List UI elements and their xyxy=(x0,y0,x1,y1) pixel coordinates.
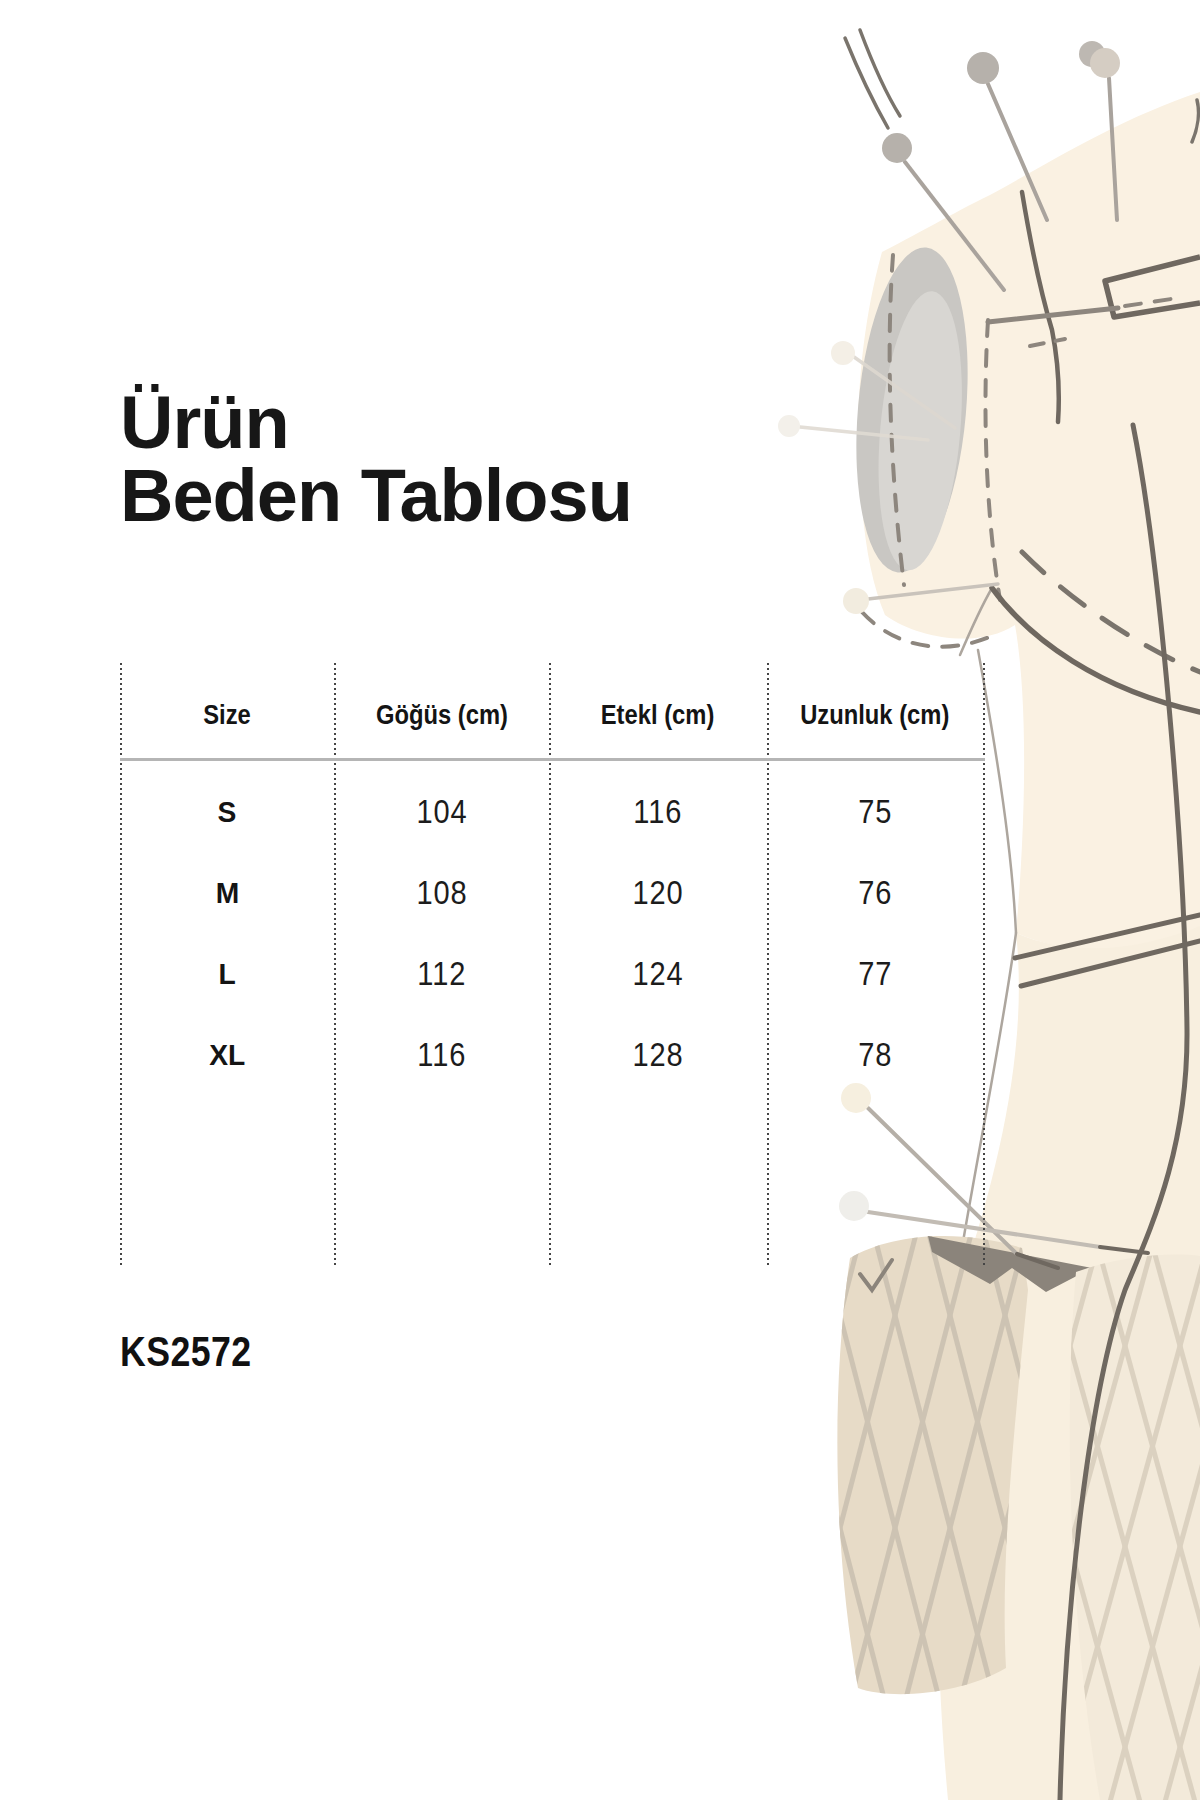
pin-icon xyxy=(841,1083,1058,1268)
pin-icon xyxy=(839,1191,1148,1253)
fabric-fold-flap xyxy=(928,1236,1092,1292)
table-row-size-label: XL xyxy=(122,1032,332,1078)
col-header-skirt: Etekl (cm) xyxy=(553,694,763,736)
table-cell: 76 xyxy=(770,870,980,916)
sleeve-roll-shadow xyxy=(844,243,980,577)
table-cell: 104 xyxy=(337,789,547,835)
table-cell: 78 xyxy=(770,1032,980,1078)
page-title-line1: Ürün xyxy=(120,386,632,459)
table-cell: 120 xyxy=(553,870,763,916)
col-header-length: Uzunluk (cm) xyxy=(770,694,980,736)
armhole-arc-dashed xyxy=(1022,552,1200,672)
table-row-size-label: M xyxy=(122,870,332,916)
table-cell: 124 xyxy=(553,951,763,997)
table-column-divider xyxy=(983,663,985,1268)
page-title: Ürün Beden Tablosu xyxy=(120,386,632,532)
col-header-size: Size xyxy=(122,694,332,736)
table-column-divider xyxy=(549,663,551,1268)
table-column-divider xyxy=(334,663,336,1268)
table-cell: 116 xyxy=(553,789,763,835)
table-cell: 108 xyxy=(337,870,547,916)
quilted-panel-right xyxy=(830,1200,1200,1800)
stitch-lines xyxy=(862,255,1178,647)
table-cell: 77 xyxy=(770,951,980,997)
table-cell: 128 xyxy=(553,1032,763,1078)
pin-icon xyxy=(831,341,955,428)
pin-icon xyxy=(967,52,1047,220)
table-header-rule xyxy=(120,758,985,761)
pin-icon xyxy=(882,133,1004,290)
yoke-step-line xyxy=(1105,257,1200,317)
pin-icon xyxy=(778,415,928,440)
product-code: KS2572 xyxy=(120,1328,275,1376)
table-row-size-label: L xyxy=(122,951,332,997)
table-cell: 116 xyxy=(337,1032,547,1078)
pin-icon xyxy=(843,584,998,614)
table-row-size-label: S xyxy=(122,789,332,835)
table-column-divider xyxy=(767,663,769,1268)
table-cell: 75 xyxy=(770,789,980,835)
page-title-line2: Beden Tablosu xyxy=(120,459,632,532)
cross-seam xyxy=(988,192,1118,422)
gray-fabric-strip xyxy=(1172,1274,1200,1575)
neck-outline xyxy=(845,30,1198,142)
col-header-chest: Göğüs (cm) xyxy=(337,694,547,736)
pin-icon xyxy=(1079,41,1120,220)
side-seam-line xyxy=(1060,425,1187,1800)
table-cell: 112 xyxy=(337,951,547,997)
quilted-panel-left xyxy=(560,1180,1175,1760)
waist-band xyxy=(1015,915,1200,986)
size-chart-page: Ürün Beden Tablosu Size Göğüs (cm) Etekl… xyxy=(0,0,1200,1800)
armhole-arc xyxy=(992,588,1200,712)
